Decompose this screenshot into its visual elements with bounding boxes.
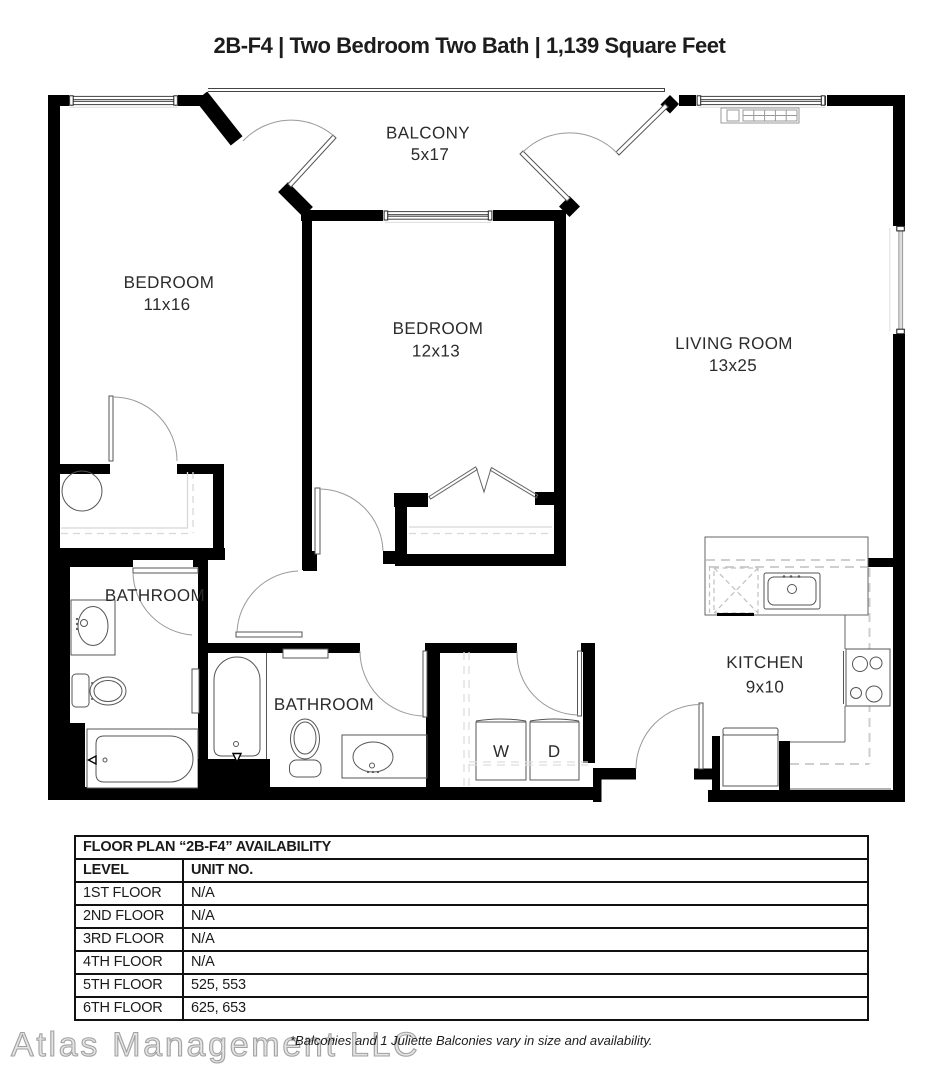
svg-text:LIVING ROOM: LIVING ROOM bbox=[675, 334, 793, 353]
svg-text:11x16: 11x16 bbox=[143, 295, 190, 314]
svg-text:BALCONY: BALCONY bbox=[386, 124, 470, 143]
svg-text:W: W bbox=[493, 742, 509, 761]
svg-text:BEDROOM: BEDROOM bbox=[124, 273, 215, 292]
svg-text:9x10: 9x10 bbox=[746, 678, 784, 697]
svg-text:BATHROOM: BATHROOM bbox=[274, 695, 374, 714]
svg-text:D: D bbox=[548, 742, 560, 761]
svg-text:KITCHEN: KITCHEN bbox=[726, 653, 803, 672]
svg-text:5x17: 5x17 bbox=[411, 145, 449, 164]
svg-text:BEDROOM: BEDROOM bbox=[393, 319, 484, 338]
svg-text:BATHROOM: BATHROOM bbox=[105, 586, 205, 605]
svg-text:13x25: 13x25 bbox=[709, 356, 757, 375]
svg-text:12x13: 12x13 bbox=[412, 342, 460, 361]
